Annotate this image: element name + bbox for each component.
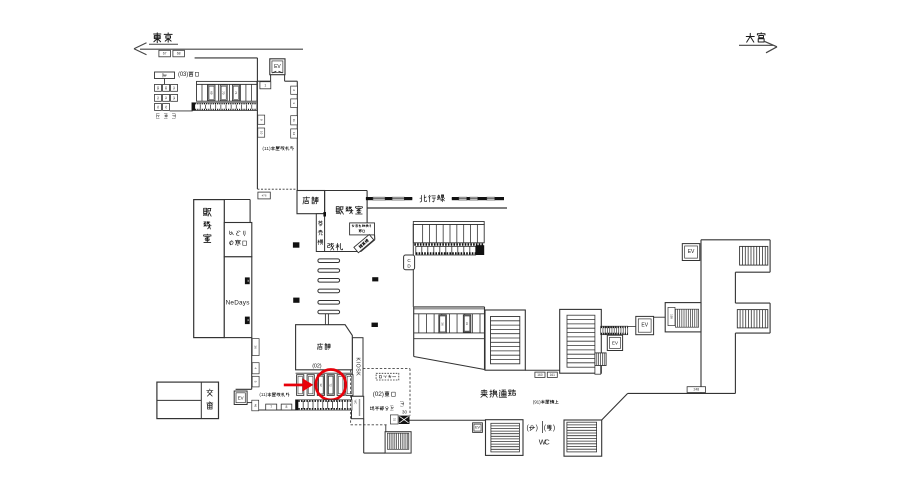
svg-text:161: 161 <box>550 373 556 377</box>
svg-text:67: 67 <box>163 52 167 56</box>
svg-text:74: 74 <box>156 96 160 100</box>
svg-text:(03): (03) <box>178 72 188 78</box>
svg-text:WC: WC <box>354 400 358 405</box>
svg-text:31: 31 <box>392 418 396 422</box>
svg-text:69: 69 <box>210 91 214 95</box>
svg-text:248: 248 <box>693 388 699 392</box>
svg-text:69: 69 <box>164 86 168 90</box>
svg-text:12: 12 <box>292 132 296 136</box>
svg-text:11: 11 <box>292 119 296 122</box>
svg-text:7: 7 <box>270 405 272 409</box>
svg-text:(11): (11) <box>259 392 267 397</box>
svg-text:WC: WC <box>539 437 551 446</box>
svg-text:EV: EV <box>475 426 480 430</box>
svg-text:71: 71 <box>164 96 168 100</box>
svg-text:(02): (02) <box>373 391 384 398</box>
svg-text:72: 72 <box>164 105 168 109</box>
svg-text:70: 70 <box>222 91 226 95</box>
svg-text:75: 75 <box>172 96 176 100</box>
svg-text:159: 159 <box>670 314 674 319</box>
svg-text:32: 32 <box>319 383 323 387</box>
svg-text:): ) <box>400 406 404 407</box>
svg-text:#78: #78 <box>262 193 267 197</box>
svg-text:160: 160 <box>537 373 543 377</box>
svg-text:(91): (91) <box>533 399 541 404</box>
svg-text:): ) <box>390 410 394 411</box>
svg-text:71: 71 <box>234 91 238 95</box>
svg-text:72: 72 <box>329 383 333 387</box>
svg-text:8: 8 <box>286 405 288 409</box>
svg-text:): ) <box>553 425 555 432</box>
svg-text:36: 36 <box>441 322 445 326</box>
svg-text:NeDays: NeDays <box>226 300 250 307</box>
svg-text:EV: EV <box>274 64 281 70</box>
svg-text:1: 1 <box>264 83 266 87</box>
svg-text:): ) <box>536 425 538 432</box>
svg-text:73: 73 <box>156 105 160 109</box>
svg-text:36: 36 <box>254 345 258 349</box>
svg-text:EV: EV <box>641 323 648 329</box>
svg-text:(11): (11) <box>262 146 271 152</box>
svg-text:EV: EV <box>612 340 618 345</box>
svg-text:EV: EV <box>688 249 695 255</box>
svg-text:(02): (02) <box>312 363 321 369</box>
svg-text:76: 76 <box>172 86 176 90</box>
svg-text:46: 46 <box>253 404 257 408</box>
svg-text:EV: EV <box>238 395 244 400</box>
svg-text:KIOSK: KIOSK <box>355 357 361 376</box>
svg-text:68: 68 <box>156 86 160 90</box>
svg-text:68: 68 <box>177 52 181 56</box>
svg-text:30: 30 <box>402 409 407 414</box>
svg-text:10: 10 <box>259 131 263 135</box>
svg-text:31: 31 <box>465 322 469 326</box>
